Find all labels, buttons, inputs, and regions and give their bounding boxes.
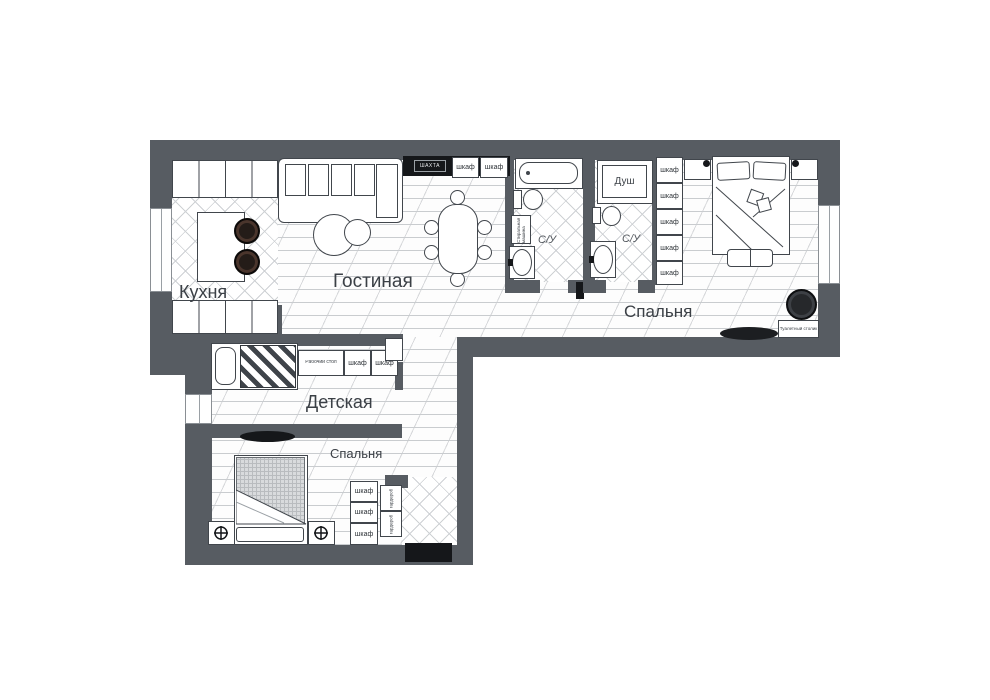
wardrobe-col-2: шкаф [656, 183, 683, 209]
closet-label: гардероб [381, 512, 401, 536]
leg-right-wall [457, 337, 473, 545]
bathroom2-label: С/У [622, 233, 640, 245]
shower-label: Душ [614, 176, 634, 187]
bottom-wardrobe-1: шкаф [350, 481, 378, 502]
double-bed-bottom [234, 455, 308, 545]
bedroom-bottom-label: Спальня [330, 446, 382, 461]
kids-pillow [215, 347, 236, 385]
bar-stool-1 [234, 218, 260, 244]
dressing-stool [786, 289, 817, 320]
desk-label: Рабочий стол [299, 360, 343, 366]
kids-bedroom-divider [210, 424, 402, 438]
floor-plan: Кухня ШАХТА шкаф шкаф Гостиная Стиральна… [0, 0, 990, 700]
dining-chair [477, 245, 492, 260]
bedroom-right-label: Спальня [624, 302, 692, 322]
bottom-wardrobe-3: шкаф [350, 523, 378, 545]
leg-left-wall [185, 344, 212, 545]
kids-label: Детская [306, 392, 373, 413]
living-label: Гостиная [333, 271, 413, 293]
toilet-1-tank [513, 190, 522, 209]
wardrobe-col-4: шкаф [656, 235, 683, 261]
washer-label: Стиральная машина [512, 216, 530, 243]
lamp-symbol [313, 525, 329, 541]
shaft-label: ШАХТА [420, 163, 440, 169]
blanket-folds [713, 157, 788, 253]
lamp-symbol [213, 525, 229, 541]
bath2-bottom-wall-l [592, 280, 606, 293]
sink-2 [590, 241, 616, 278]
dining-chair [477, 220, 492, 235]
closet-1: гардероб [380, 485, 402, 511]
kids-bed [211, 343, 298, 390]
dining-chair [450, 272, 465, 287]
shaft-box: ШАХТА [414, 160, 446, 172]
wardrobe-col-5: шкаф [656, 261, 683, 285]
corridor-cabinet [385, 338, 403, 361]
kitchen-label: Кухня [179, 282, 227, 303]
toilet-2-bowl [602, 206, 621, 226]
entry-mat [405, 543, 452, 562]
dressing-table: Туалетный столик [778, 320, 819, 338]
sofa [278, 158, 403, 223]
shower-box: Душ [597, 160, 653, 204]
side-table [344, 219, 371, 246]
bath1-bottom-wall-l [505, 280, 540, 293]
nightstand-bl [208, 521, 235, 545]
closet-label: гардероб [381, 486, 401, 510]
dining-chair [424, 220, 439, 235]
wardrobe-col-3: шкаф [656, 209, 683, 235]
kitchen-counter-bottom [172, 300, 278, 334]
band-bottom-wall [457, 337, 840, 357]
tv [240, 431, 295, 442]
wardrobe-col-1: шкаф [656, 157, 683, 183]
bed-bench [727, 249, 773, 267]
rug [720, 327, 778, 340]
bar-stool-2 [234, 249, 260, 275]
lamp-right [792, 160, 799, 167]
sink-1 [509, 246, 535, 279]
kids-blanket [240, 345, 296, 388]
kids-wardrobe-1: шкаф [344, 350, 371, 376]
bathtub [515, 158, 583, 189]
wardrobe-top-2: шкаф [480, 157, 508, 178]
wardrobe-top-1: шкаф [452, 157, 479, 178]
entry-hall-floor [402, 477, 457, 545]
dressing-table-label: Туалетный столик [779, 327, 818, 332]
dining-table [438, 204, 478, 274]
nightstand-br [308, 521, 335, 545]
dining-chair [424, 245, 439, 260]
bathroom1-label: С/У [538, 234, 556, 246]
toilet-1-bowl [523, 189, 543, 210]
bedroom-right-window [818, 205, 840, 284]
closet-2: гардероб [380, 511, 402, 537]
lamp-left [703, 160, 710, 167]
bottom-wardrobe-2: шкаф [350, 502, 378, 523]
headboard [236, 527, 304, 542]
kids-desk: Рабочий стол [298, 350, 344, 376]
kitchen-counter-top [172, 160, 278, 198]
washing-machine: Стиральная машина [511, 215, 531, 244]
kitchen-window [150, 208, 172, 292]
double-bed-right [712, 156, 790, 255]
dining-chair [450, 190, 465, 205]
kids-window [185, 394, 212, 424]
toilet-2-tank [592, 207, 601, 224]
